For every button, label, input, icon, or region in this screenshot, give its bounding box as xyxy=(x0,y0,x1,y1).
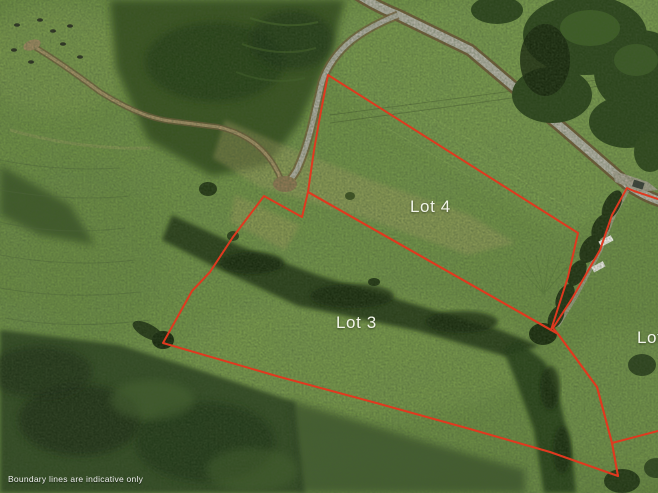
aerial-photo xyxy=(0,0,658,493)
aerial-map: Boundary lines are indicative only Lot 4… xyxy=(0,0,658,493)
